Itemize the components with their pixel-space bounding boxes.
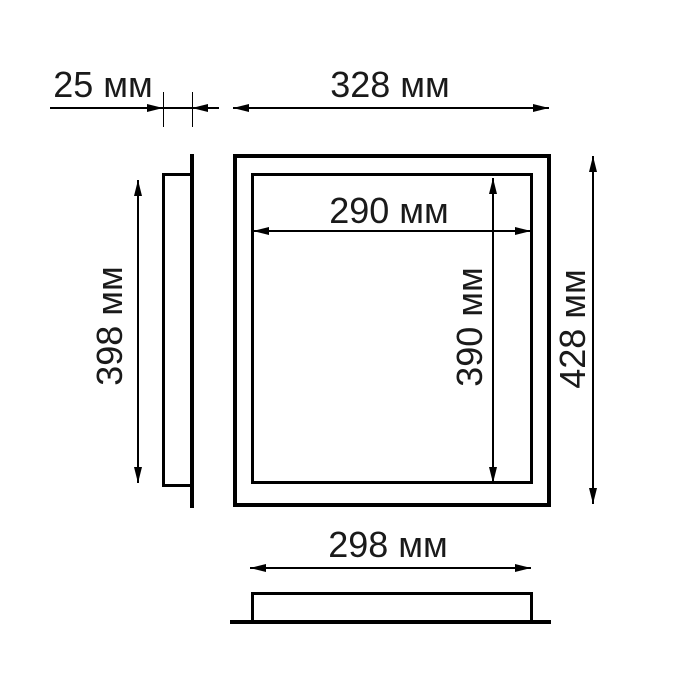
dimension-label-depth: 25 мм bbox=[53, 67, 153, 103]
dimension-label-outer-height: 428 мм bbox=[555, 269, 591, 389]
bottom-view-body bbox=[251, 592, 533, 622]
dimension-line-depth-right-tail bbox=[192, 107, 219, 109]
arrowhead-down-icon bbox=[489, 467, 497, 483]
extension-line-depth-right bbox=[192, 92, 194, 127]
arrowhead-left-icon bbox=[250, 564, 266, 572]
dimension-line-depth-left-tail bbox=[50, 107, 163, 109]
arrowhead-left-icon bbox=[253, 227, 269, 235]
dimension-line-outer-height bbox=[592, 156, 594, 504]
arrowhead-up-icon bbox=[489, 178, 497, 194]
dimension-label-inner-height: 390 мм bbox=[452, 267, 488, 387]
dimension-label-side-height: 398 мм bbox=[92, 266, 128, 386]
dimension-line-outer-width bbox=[233, 107, 549, 109]
dimension-line-side-height bbox=[137, 180, 139, 483]
arrowhead-up-icon bbox=[589, 156, 597, 172]
arrowhead-up-icon bbox=[134, 180, 142, 196]
extension-line-depth-left bbox=[163, 92, 165, 127]
arrowhead-left-icon bbox=[192, 104, 208, 112]
arrowhead-right-icon bbox=[515, 227, 531, 235]
arrowhead-right-icon bbox=[515, 564, 531, 572]
dimension-line-bottom-width bbox=[250, 567, 531, 569]
arrowhead-down-icon bbox=[589, 488, 597, 504]
arrowhead-left-icon bbox=[233, 104, 249, 112]
dimension-label-outer-width: 328 мм bbox=[330, 67, 450, 103]
arrowhead-right-icon bbox=[147, 104, 163, 112]
side-view-body bbox=[162, 173, 192, 487]
technical-drawing-canvas: 25 мм 328 мм 290 мм 390 мм 428 мм 398 мм… bbox=[0, 0, 700, 700]
dimension-line-inner-height bbox=[492, 178, 494, 483]
dimension-label-bottom-width: 298 мм bbox=[328, 527, 448, 563]
dimension-label-inner-width: 290 мм bbox=[329, 193, 449, 229]
dimension-line-depth-connector bbox=[163, 107, 192, 109]
arrowhead-right-icon bbox=[533, 104, 549, 112]
arrowhead-down-icon bbox=[134, 467, 142, 483]
bottom-view-flange-line bbox=[230, 620, 551, 624]
dimension-line-inner-width bbox=[253, 230, 531, 232]
side-view-flange-line bbox=[190, 154, 194, 508]
